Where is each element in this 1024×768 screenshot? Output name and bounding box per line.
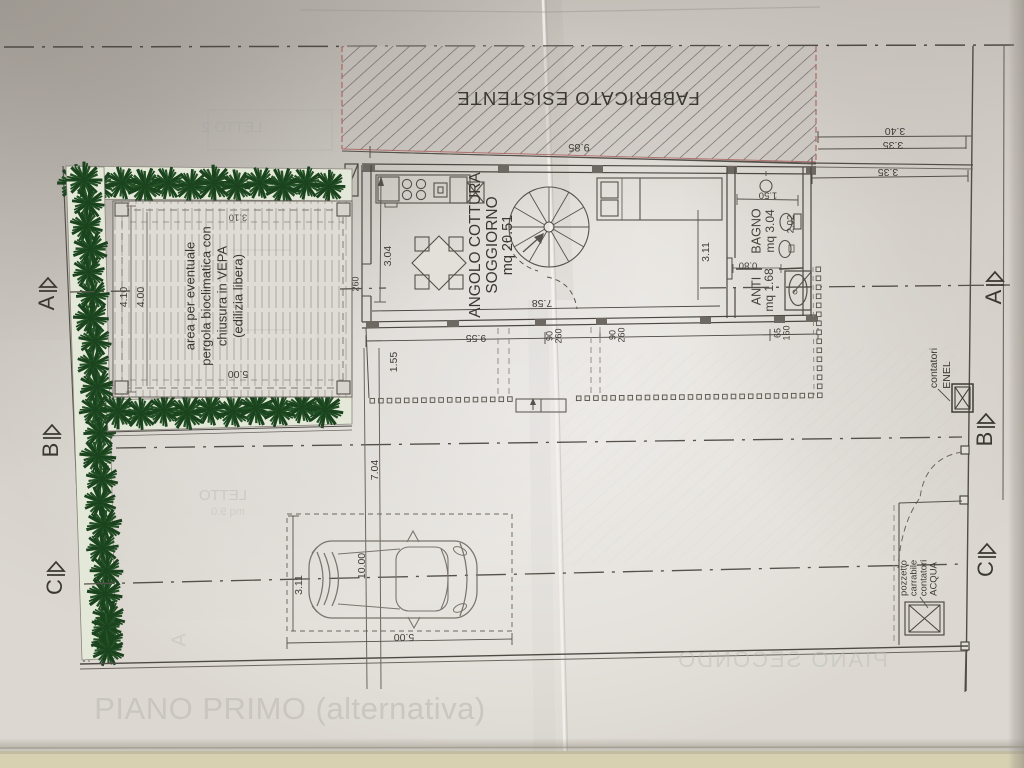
svg-text:FABBRICATO ESISTENTE: FABBRICATO ESISTENTE [456, 88, 699, 109]
svg-text:BAGNO: BAGNO [749, 208, 763, 253]
svg-text:B: B [38, 443, 63, 458]
svg-text:ANGOLO COTTURA: ANGOLO COTTURA [467, 172, 484, 318]
svg-text:area per eventuale: area per eventuale [182, 242, 197, 350]
svg-text:LETTO: LETTO [199, 487, 247, 504]
svg-text:(edilizia libera): (edilizia libera) [230, 254, 245, 338]
svg-text:chiusura in VEPA: chiusura in VEPA [214, 246, 229, 347]
svg-text:mq 1.68: mq 1.68 [762, 268, 776, 312]
svg-text:260: 260 [616, 327, 626, 342]
svg-text:4.00: 4.00 [135, 287, 147, 308]
svg-text:3.10: 3.10 [229, 211, 248, 222]
svg-text:10.00: 10.00 [356, 553, 368, 579]
svg-text:C: C [42, 579, 67, 595]
svg-text:2.02: 2.02 [786, 215, 797, 234]
svg-text:3.40: 3.40 [885, 125, 906, 137]
svg-text:7.58: 7.58 [532, 297, 553, 309]
svg-text:SOGGIORNO: SOGGIORNO [484, 196, 501, 293]
svg-text:260: 260 [553, 328, 563, 343]
svg-text:A: A [34, 295, 59, 310]
svg-text:7.04: 7.04 [369, 460, 381, 481]
svg-text:1.50: 1.50 [759, 189, 778, 200]
svg-text:1.55: 1.55 [388, 352, 400, 373]
svg-text:B: B [972, 432, 997, 447]
svg-text:C: C [973, 561, 998, 577]
svg-text:5.00: 5.00 [228, 368, 249, 380]
svg-text:4.10: 4.10 [118, 287, 130, 308]
svg-text:mq 20.51: mq 20.51 [500, 215, 516, 275]
svg-text:9.55: 9.55 [466, 332, 487, 344]
svg-text:3.04: 3.04 [382, 246, 394, 267]
svg-text:pergola bioclimatica con: pergola bioclimatica con [198, 226, 213, 365]
svg-text:PIANO PRIMO (alternativa): PIANO PRIMO (alternativa) [94, 691, 485, 726]
svg-text:ACQUA: ACQUA [929, 561, 940, 595]
svg-text:3.35: 3.35 [883, 139, 904, 151]
svg-text:3.11: 3.11 [700, 242, 712, 262]
svg-text:3.11: 3.11 [293, 575, 305, 595]
svg-text:mq 9.0: mq 9.0 [211, 506, 245, 518]
svg-text:LETTO 2: LETTO 2 [202, 119, 263, 136]
svg-text:160: 160 [781, 325, 791, 340]
svg-text:A: A [981, 289, 1006, 304]
svg-text:mq 3.04: mq 3.04 [763, 209, 777, 253]
svg-text:PIANO SECONDO: PIANO SECONDO [676, 647, 888, 672]
svg-text:0.80: 0.80 [739, 259, 758, 270]
svg-text:5.00: 5.00 [394, 631, 415, 643]
svg-text:9.85: 9.85 [568, 141, 589, 153]
svg-text:A: A [168, 633, 190, 647]
